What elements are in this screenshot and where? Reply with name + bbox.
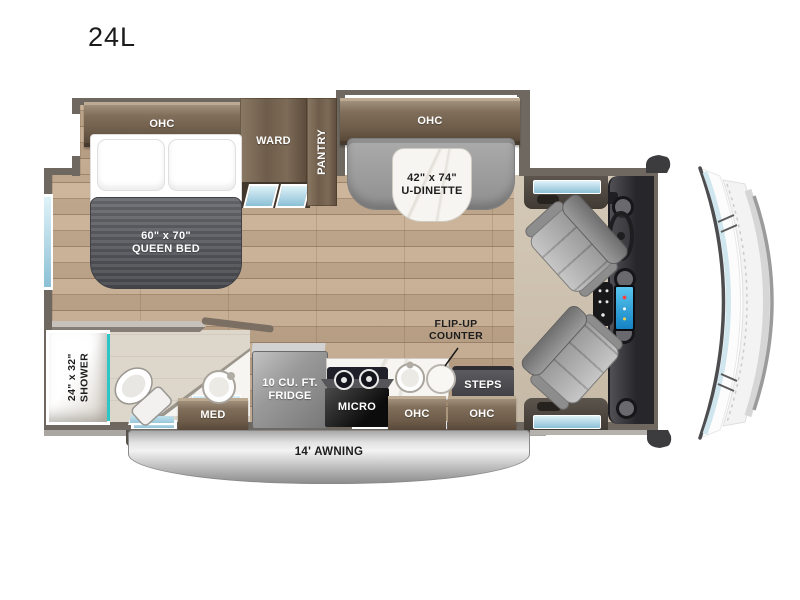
stove-burners (335, 370, 378, 389)
front-hood (700, 168, 772, 438)
awning-label: 14' AWNING (295, 446, 364, 483)
bath-sink (203, 371, 235, 403)
flip-up-pointer (445, 348, 458, 366)
kitchen-sink (396, 362, 424, 393)
rv-floorplan: 24L OHC WARD PANTRY 60" x 70" QUEE (0, 0, 800, 600)
flip-up-counter (427, 365, 455, 393)
side-mirror-top (646, 155, 670, 173)
side-mirror-bottom (647, 430, 671, 448)
toilet (108, 361, 174, 428)
details-overlay (0, 0, 800, 600)
